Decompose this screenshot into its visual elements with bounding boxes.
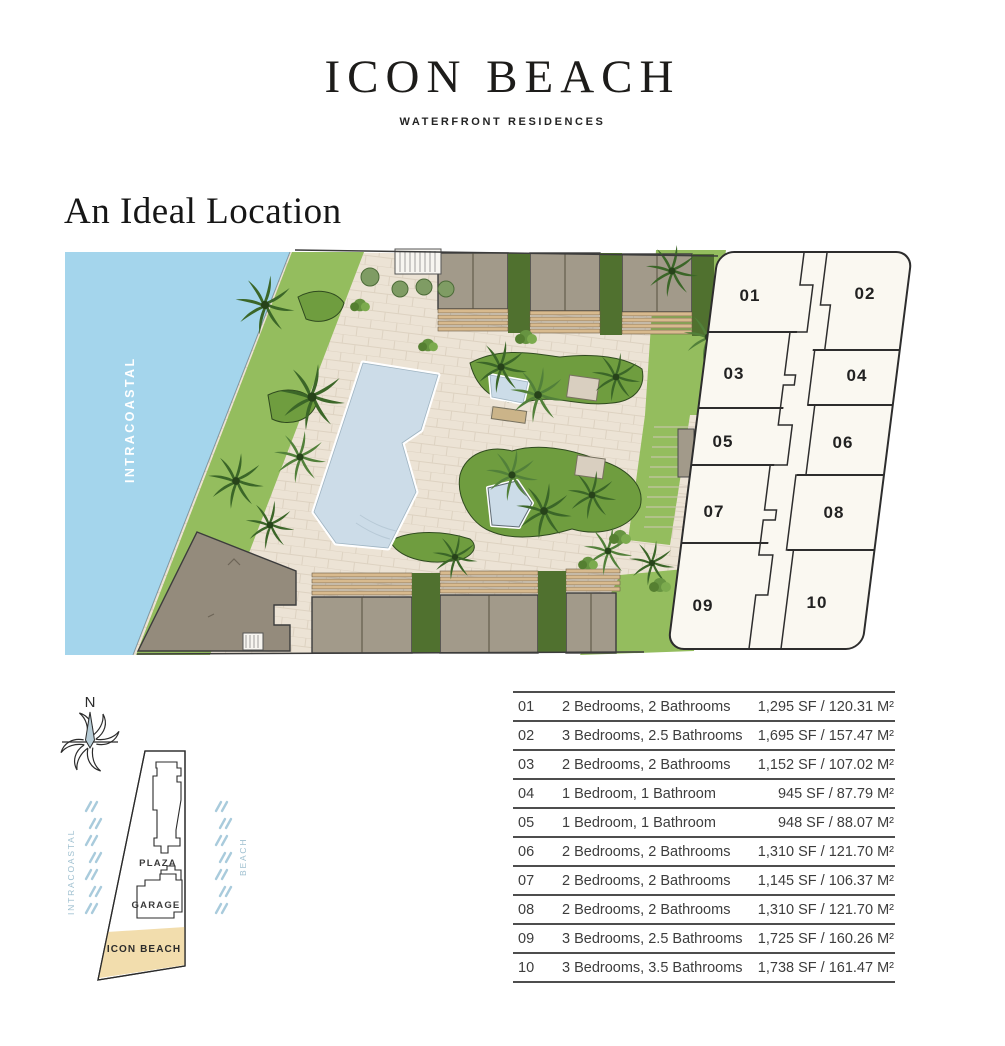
unit-number: 09 [513,931,562,947]
unit-number: 05 [513,815,562,831]
compass-north-label: N [85,694,96,711]
intracoastal-waves [86,802,101,913]
brand-header: ICON BEACH WATERFRONT RESIDENCES [0,54,1005,128]
unit-area: 1,695 SF / 157.47 M² [758,728,895,744]
stair-structure-north [395,249,441,274]
plate-unit-04: 04 [847,366,868,385]
table-row: 02 3 Bedrooms, 2.5 Bathrooms 1,695 SF / … [513,720,895,749]
map-garage-label: GARAGE [132,900,181,911]
unit-type: 3 Bedrooms, 3.5 Bathrooms [562,960,758,976]
plate-unit-10: 10 [807,593,828,612]
map-beach-label: BEACH [238,838,248,876]
unit-table: 01 2 Bedrooms, 2 Bathrooms 1,295 SF / 12… [513,691,895,983]
unit-area: 948 SF / 88.07 M² [778,815,895,831]
unit-number: 06 [513,844,562,860]
unit-area: 1,738 SF / 161.47 M² [758,960,895,976]
table-row: 08 2 Bedrooms, 2 Bathrooms 1,310 SF / 12… [513,894,895,923]
plate-unit-06: 06 [833,433,854,452]
table-row: 04 1 Bedroom, 1 Bathroom 945 SF / 87.79 … [513,778,895,807]
table-row: 09 3 Bedrooms, 2.5 Bathrooms 1,725 SF / … [513,923,895,952]
beach-waves [216,802,231,913]
unit-type: 2 Bedrooms, 2 Bathrooms [562,757,758,773]
plate-unit-01: 01 [740,286,761,305]
unit-area: 945 SF / 87.79 M² [778,786,895,802]
table-row: 10 3 Bedrooms, 3.5 Bathrooms 1,738 SF / … [513,952,895,983]
table-row: 03 2 Bedrooms, 2 Bathrooms 1,152 SF / 10… [513,749,895,778]
unit-number: 07 [513,873,562,889]
page-title: An Ideal Location [64,190,342,233]
plate-unit-02: 02 [855,284,876,303]
unit-type: 1 Bedroom, 1 Bathroom [562,815,778,831]
unit-area: 1,310 SF / 121.70 M² [758,844,895,860]
unit-number: 04 [513,786,562,802]
unit-number: 08 [513,902,562,918]
site-plan-illustration: 01 02 03 04 05 06 07 08 09 10 INTRACOAST… [60,245,935,662]
plate-unit-07: 07 [704,502,725,521]
unit-area: 1,310 SF / 121.70 M² [758,902,895,918]
brochure-page: { "header": { "title": "ICON BEACH", "ta… [0,0,1005,1046]
unit-type: 2 Bedrooms, 2 Bathrooms [562,902,758,918]
plate-unit-03: 03 [724,364,745,383]
unit-type: 2 Bedrooms, 2 Bathrooms [562,844,758,860]
intracoastal-water-label: INTRACOASTAL [123,357,137,483]
plate-unit-05: 05 [713,432,734,451]
table-row: 05 1 Bedroom, 1 Bathroom 948 SF / 88.07 … [513,807,895,836]
brand-title: ICON BEACH [0,54,1005,101]
map-plaza-label: PLAZA [139,858,177,869]
location-map: N INTRACOASTAL BEACH [30,680,280,1020]
plate-unit-09: 09 [693,596,714,615]
unit-area: 1,152 SF / 107.02 M² [758,757,895,773]
table-row: 01 2 Bedrooms, 2 Bathrooms 1,295 SF / 12… [513,691,895,720]
unit-type: 2 Bedrooms, 2 Bathrooms [562,699,758,715]
unit-area: 1,145 SF / 106.37 M² [758,873,895,889]
table-row: 06 2 Bedrooms, 2 Bathrooms 1,310 SF / 12… [513,836,895,865]
unit-type: 2 Bedrooms, 2 Bathrooms [562,873,758,889]
unit-area: 1,725 SF / 160.26 M² [758,931,895,947]
unit-type: 3 Bedrooms, 2.5 Bathrooms [562,728,758,744]
plate-unit-08: 08 [824,503,845,522]
brand-tagline: WATERFRONT RESIDENCES [0,116,1005,128]
unit-type: 1 Bedroom, 1 Bathroom [562,786,778,802]
unit-number: 02 [513,728,562,744]
unit-area: 1,295 SF / 120.31 M² [758,699,895,715]
unit-number: 01 [513,699,562,715]
unit-type: 3 Bedrooms, 2.5 Bathrooms [562,931,758,947]
compass-rose: N [59,694,120,773]
map-intracoastal-label: INTRACOASTAL [66,829,76,915]
table-row: 07 2 Bedrooms, 2 Bathrooms 1,145 SF / 10… [513,865,895,894]
unit-number: 10 [513,960,562,976]
map-site-label: ICON BEACH [107,944,181,955]
unit-number: 03 [513,757,562,773]
